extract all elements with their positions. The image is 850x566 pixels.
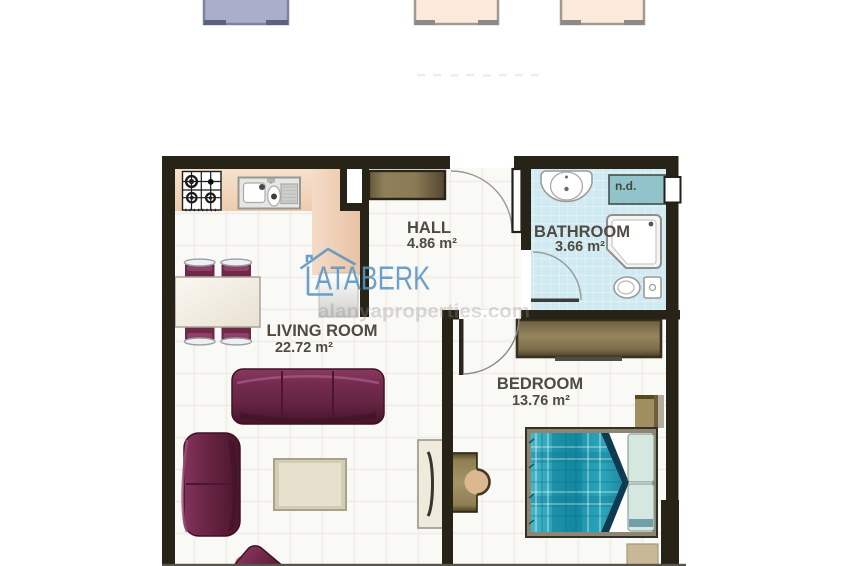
svg-text:alanyaproperties.com: alanyaproperties.com [318, 301, 530, 322]
svg-text:ATABERK: ATABERK [315, 260, 430, 297]
svg-text:13.76 m²: 13.76 m² [512, 393, 570, 409]
svg-text:LIVING ROOM: LIVING ROOM [267, 322, 378, 340]
svg-text:BEDROOM: BEDROOM [497, 375, 583, 393]
svg-text:4.86 m²: 4.86 m² [407, 236, 457, 252]
svg-text:22.72 m²: 22.72 m² [275, 340, 333, 356]
svg-text:n.d.: n.d. [615, 179, 636, 193]
svg-text:HALL: HALL [407, 219, 451, 237]
svg-text:3.66 m²: 3.66 m² [555, 239, 605, 255]
